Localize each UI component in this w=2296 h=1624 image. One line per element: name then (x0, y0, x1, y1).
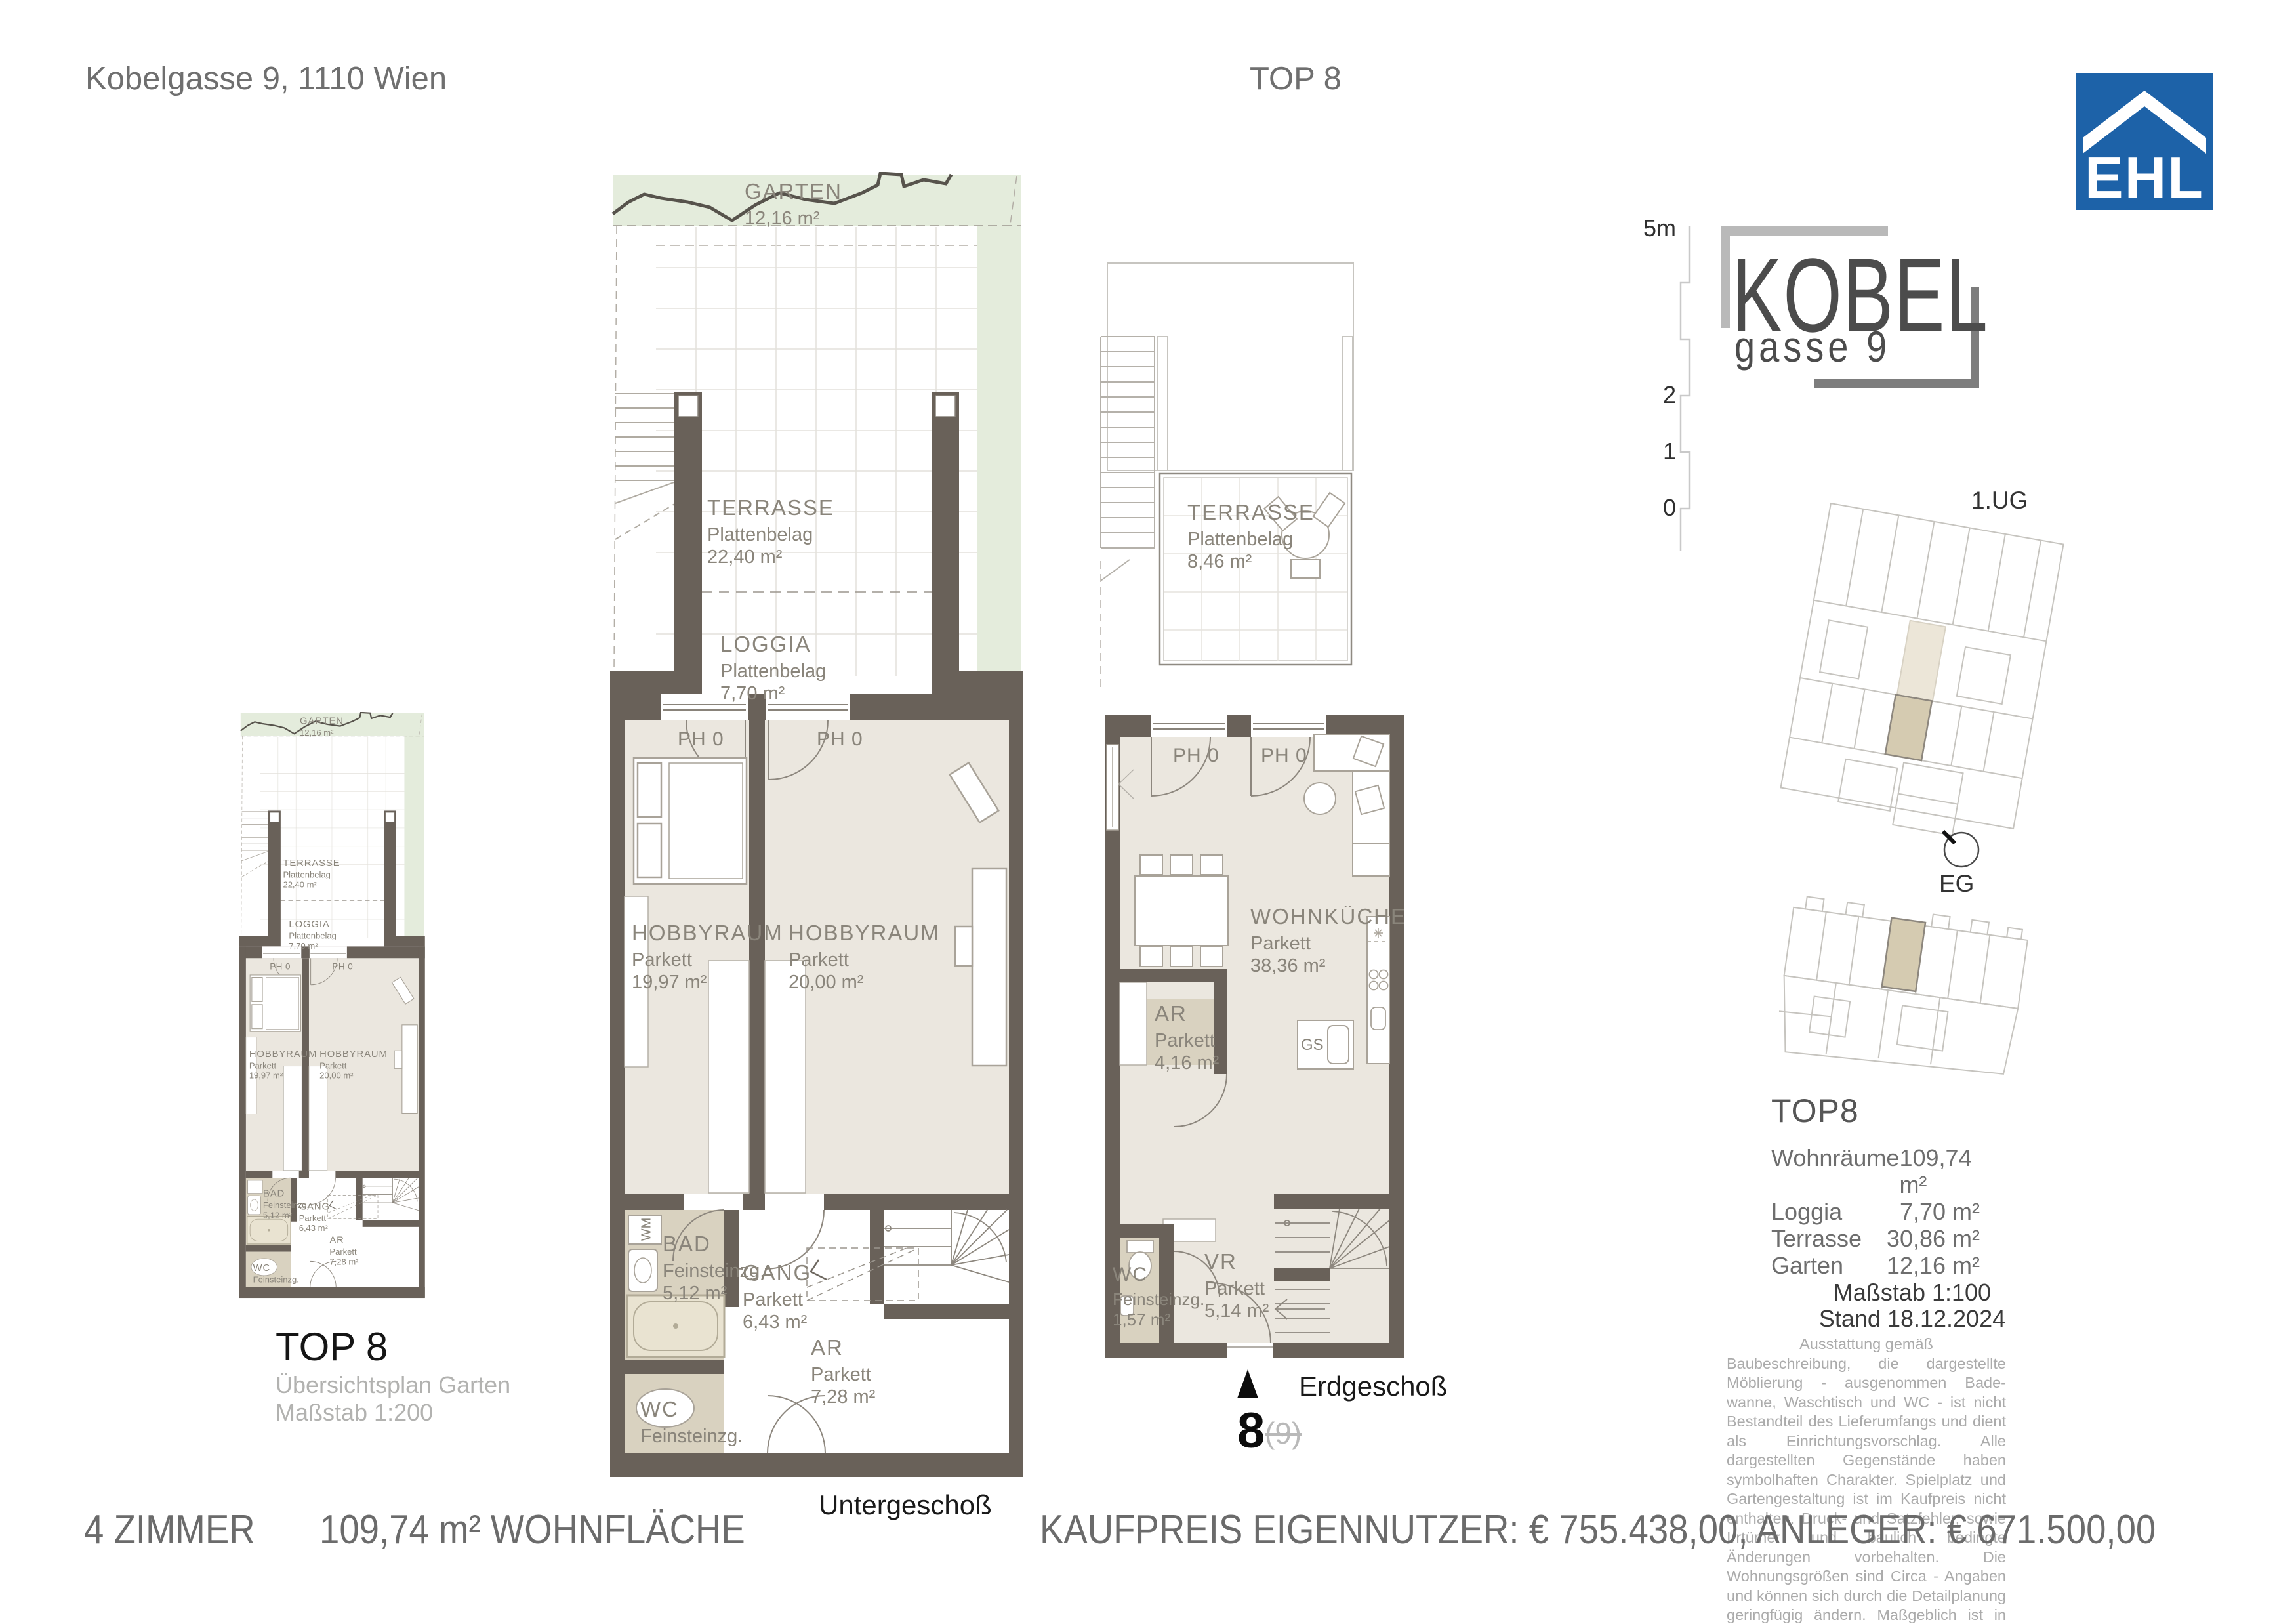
room-finish: Plattenbelag (707, 524, 834, 547)
date-note-line: Stand 18.12.2024 (1774, 1306, 2050, 1332)
room-finish: Plattenbelag (1187, 528, 1315, 551)
room-label-loggia: LOGGIA Plattenbelag 7,70 m² (720, 631, 826, 705)
room-label-hobby-right: HOBBYRAUM Parkett 20,00 m² (789, 920, 940, 994)
siteplan-eg-drawing (1758, 887, 2047, 1077)
page-title-address: Kobelgasse 9, 1110 Wien (85, 60, 447, 97)
room-finish: Feinsteinzg. (640, 1425, 743, 1448)
room-name: VR (1204, 1249, 1269, 1275)
room-label-gang: GANG Parkett 6,43 m² (743, 1260, 811, 1334)
info-row-loggia: Loggia 7,70 m² (1771, 1198, 1980, 1225)
ruler-label-1: 1 (1630, 438, 1676, 465)
ruler-label-2: 2 (1630, 381, 1676, 409)
footer-price: KAUFPREIS EIGENNUTZER: € 755.438,00, ANL… (1040, 1507, 2156, 1553)
room-finish: Parkett (811, 1364, 875, 1386)
unit-number-old: (9) (1265, 1415, 1302, 1451)
room-label-ar-eg: AR Parkett 4,16 m² (1155, 1001, 1219, 1075)
room-name: HOBBYRAUM (632, 920, 783, 946)
floor-label-erdgeschoss: Erdgeschoß (1299, 1371, 1447, 1402)
project-name-line2: gasse 9 (1734, 322, 1891, 371)
room-name: WC (640, 1396, 743, 1423)
room-area: 19,97 m² (632, 971, 783, 994)
info-label: Garten (1771, 1252, 1843, 1279)
room-area: 6,43 m² (743, 1311, 811, 1334)
footer-area: 109,74 m² WOHNFLÄCHE (319, 1507, 745, 1553)
ph-label-left-eg: PH 0 (1173, 745, 1220, 767)
room-finish: Parkett (319, 1060, 388, 1071)
info-label: Loggia (1771, 1198, 1842, 1225)
room-name: BAD (263, 1188, 309, 1199)
ehl-logo-text: EHL (2076, 144, 2213, 211)
overview-labels: GARTEN 12,16 m² TERRASSE Plattenbelag 22… (239, 712, 425, 1316)
mini-room-label-terrasse: TERRASSE Plattenbelag 22,40 m² (283, 857, 340, 890)
ph-label-left: PH 0 (678, 728, 724, 751)
siteplan-ug-label: 1.UG (1971, 487, 2028, 514)
siteplan-eg (1758, 887, 2047, 1077)
room-finish: Parkett (789, 949, 940, 972)
overview-title: TOP 8 (276, 1324, 388, 1369)
room-area: 22,40 m² (283, 880, 340, 890)
overview-scale: Maßstab 1:200 (276, 1399, 433, 1426)
room-area: 12,16 m² (300, 728, 344, 738)
disclaimer-intro: Ausstattung gemäß (1727, 1335, 2006, 1354)
room-area: 6,43 m² (299, 1224, 330, 1234)
ruler-label-0: 0 (1630, 494, 1676, 522)
info-value: 12,16 m² (1887, 1252, 1980, 1279)
room-finish: Plattenbelag (283, 869, 340, 880)
room-label-wc: WC Feinsteinzg. (640, 1396, 743, 1447)
room-name: LOGGIA (720, 631, 826, 657)
room-name: HOBBYRAUM (249, 1048, 318, 1060)
room-finish: Plattenbelag (289, 931, 336, 942)
info-row-wohnraeume: Wohnräume 109,74 m² (1771, 1144, 1980, 1198)
room-name: WC (1113, 1263, 1204, 1287)
ph-label-right: PH 0 (817, 728, 863, 751)
floor-label-untergeschoss: Untergeschoß (819, 1489, 992, 1521)
room-name: HOBBYRAUM (789, 920, 940, 946)
room-label-terrasse-eg: TERRASSE Plattenbelag 8,46 m² (1187, 499, 1315, 573)
mini-room-label-hobby-left: HOBBYRAUM Parkett 19,97 m² (249, 1048, 318, 1081)
ruler-label-5m: 5m (1630, 215, 1676, 242)
info-value: 109,74 m² (1899, 1144, 1980, 1198)
room-label-garten: GARTEN 12,16 m² (745, 178, 842, 230)
mini-ph-left: PH 0 (270, 962, 291, 972)
floorplan-document: Kobelgasse 9, 1110 Wien TOP 8 EHL KOBEL … (0, 0, 2296, 1624)
disclaimer: Ausstattung gemäß Baubeschreibung, die d… (1727, 1335, 2006, 1624)
mini-ph-right: PH 0 (332, 962, 353, 972)
room-name: TERRASSE (707, 495, 834, 521)
room-area: 38,36 m² (1250, 955, 1406, 978)
info-label: Terrasse (1771, 1225, 1862, 1252)
room-name: TERRASSE (1187, 499, 1315, 526)
room-finish: Parkett (249, 1060, 318, 1071)
room-name: AR (811, 1335, 875, 1361)
highlighted-unit-eg (1882, 918, 1925, 991)
unit-info-panel: TOP8 Wohnräume 109,74 m² Loggia 7,70 m² … (1771, 1092, 1980, 1279)
room-finish: Feinsteinzg. (1113, 1289, 1204, 1310)
room-finish: Parkett (1155, 1030, 1219, 1052)
room-finish: Parkett (632, 949, 783, 972)
room-area: 19,97 m² (249, 1071, 318, 1081)
room-area: 4,16 m² (1155, 1052, 1219, 1075)
room-finish: Parkett (1250, 932, 1406, 955)
room-label-wohnkueche: WOHNKÜCHE Parkett 38,36 m² (1250, 904, 1406, 978)
room-name: GARTEN (745, 178, 842, 205)
info-row-terrasse: Terrasse 30,86 m² (1771, 1225, 1980, 1252)
room-area: 5,14 m² (1204, 1300, 1269, 1323)
room-name: GARTEN (300, 715, 344, 726)
room-name: AR (1155, 1001, 1219, 1027)
room-label-terrasse: TERRASSE Plattenbelag 22,40 m² (707, 495, 834, 569)
page-title-unit: TOP 8 (1250, 60, 1342, 97)
room-name: LOGGIA (289, 918, 336, 930)
entrance-marker-icon (1237, 1369, 1258, 1398)
room-finish: Parkett (329, 1247, 358, 1257)
room-area: 20,00 m² (319, 1071, 388, 1081)
overview-plan: GARTEN 12,16 m² TERRASSE Plattenbelag 22… (239, 712, 426, 1317)
room-label-vr: VR Parkett 5,14 m² (1204, 1249, 1269, 1323)
room-area: 1,57 m² (1113, 1310, 1204, 1330)
room-label-ar: AR Parkett 7,28 m² (811, 1335, 875, 1409)
siteplan-ug-drawing (1765, 482, 2080, 850)
floorplan-untergeschoss: GARTEN 12,16 m² TERRASSE Plattenbelag 22… (610, 172, 1023, 1517)
room-area: 8,46 m² (1187, 551, 1315, 573)
info-label: Wohnräume (1771, 1144, 1899, 1198)
dishwasher-label: GS (1301, 1036, 1324, 1054)
room-label-wc-eg: WC Feinsteinzg. 1,57 m² (1113, 1263, 1204, 1330)
unit-info-title: TOP8 (1771, 1092, 1980, 1130)
compass-icon (1935, 823, 1985, 873)
room-label-hobby-left: HOBBYRAUM Parkett 19,97 m² (632, 920, 783, 994)
mini-room-label-garten: GARTEN 12,16 m² (300, 715, 344, 738)
mini-room-label-ar: AR Parkett 7,28 m² (329, 1234, 358, 1268)
disclaimer-body: Baubeschreibung, die dargestellte Möblie… (1727, 1354, 2006, 1624)
siteplan-ug (1765, 482, 2080, 850)
eg-labels: TERRASSE Plattenbelag 8,46 m² PH 0 PH 0 … (1089, 259, 1561, 1493)
highlighted-unit-ug (1885, 695, 1932, 760)
room-name: HOBBYRAUM (319, 1048, 388, 1060)
room-area: 20,00 m² (789, 971, 940, 994)
room-area: 7,70 m² (289, 941, 336, 951)
ph-label-right-eg: PH 0 (1261, 745, 1307, 767)
room-area: 7,70 m² (720, 682, 826, 705)
room-name: GANG (743, 1260, 811, 1286)
mini-room-label-hobby-right: HOBBYRAUM Parkett 20,00 m² (319, 1048, 388, 1081)
room-name: AR (329, 1234, 358, 1246)
mini-room-label-gang: GANG Parkett 6,43 m² (299, 1200, 330, 1234)
logo-bracket-top (1721, 226, 1888, 236)
mini-room-label-wc: WC Feinsteinzg. (253, 1262, 299, 1285)
room-finish: Feinsteinzg. (253, 1274, 299, 1285)
room-name: TERRASSE (283, 857, 340, 869)
plan-scale-note: Maßstab 1:100 Stand 18.12.2024 (1774, 1280, 2050, 1332)
room-finish: Parkett (299, 1213, 330, 1224)
ug-labels: GARTEN 12,16 m² TERRASSE Plattenbelag 22… (610, 172, 1023, 1517)
scale-ruler: 5m 2 1 0 (1607, 213, 1725, 594)
unit-number: 8 (1237, 1402, 1265, 1459)
room-name: WC (253, 1262, 299, 1274)
room-finish: Parkett (743, 1289, 811, 1312)
info-value: 7,70 m² (1900, 1198, 1980, 1225)
room-area: 22,40 m² (707, 546, 834, 569)
mini-room-label-loggia: LOGGIA Plattenbelag 7,70 m² (289, 918, 336, 951)
info-row-garten: Garten 12,16 m² (1771, 1252, 1980, 1279)
room-name: BAD (663, 1231, 765, 1257)
footer-rooms: 4 ZIMMER (84, 1507, 255, 1553)
project-logo: KOBEL gasse 9 (1719, 223, 1988, 400)
room-area: 7,28 m² (329, 1257, 358, 1268)
room-finish: Parkett (1204, 1278, 1269, 1301)
ehl-logo: EHL (2076, 73, 2213, 210)
scale-note-line: Maßstab 1:100 (1774, 1280, 2050, 1306)
overview-subtitle: Übersichtsplan Garten (276, 1371, 510, 1399)
room-area: 7,28 m² (811, 1386, 875, 1409)
room-name: GANG (299, 1200, 330, 1212)
washing-machine-label: WM (639, 1218, 654, 1241)
floorplan-erdgeschoss: TERRASSE Plattenbelag 8,46 m² PH 0 PH 0 … (1089, 259, 1561, 1493)
room-name: WOHNKÜCHE (1250, 904, 1406, 930)
room-area: 12,16 m² (745, 207, 842, 230)
info-value: 30,86 m² (1887, 1225, 1980, 1252)
logo-bracket-bottom (1814, 379, 1979, 388)
room-finish: Plattenbelag (720, 660, 826, 683)
